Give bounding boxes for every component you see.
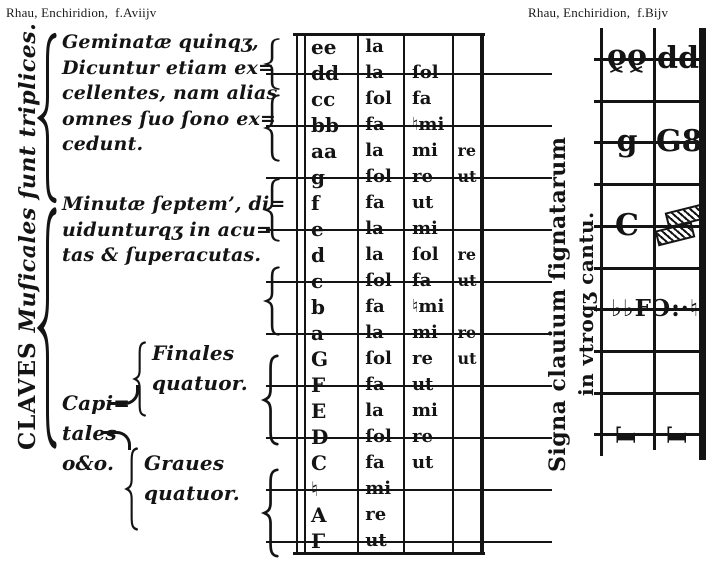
solmization-syllable: re bbox=[456, 138, 482, 164]
solmization-syllable bbox=[456, 294, 482, 320]
brace-table-geminatae-2 bbox=[264, 94, 281, 162]
solmization-syllable: fa bbox=[357, 112, 407, 138]
note-letter: E bbox=[306, 398, 357, 424]
brace-table-geminatae-1 bbox=[264, 38, 281, 90]
solmization-syllable: la bbox=[357, 320, 407, 346]
text-line: quatuor. bbox=[152, 368, 248, 398]
solmization-syllable bbox=[407, 528, 456, 554]
solmization-syllable bbox=[456, 502, 482, 528]
hatched-square-sign bbox=[656, 208, 702, 242]
gamut-row-e: elami bbox=[306, 216, 482, 242]
solmization-syllable: la bbox=[357, 398, 407, 424]
finales-label: Finales quatuor. bbox=[152, 338, 248, 398]
gamut-row-C: Cfaut bbox=[306, 450, 482, 476]
solmization-syllable: fa bbox=[357, 190, 407, 216]
clef-glyph: C bbox=[615, 208, 639, 243]
solmization-syllable: ut bbox=[456, 268, 482, 294]
gamut-row-F: Ffaut bbox=[306, 372, 482, 398]
clef-sign: Γ bbox=[602, 413, 652, 456]
claves-label-caps: CLAVES bbox=[14, 341, 41, 450]
text-line: omnes ſuo ſono ex= bbox=[62, 107, 277, 133]
solmization-syllable: fa bbox=[357, 294, 407, 320]
text-line: o&o. bbox=[62, 448, 130, 478]
solmization-syllable: mi bbox=[357, 476, 407, 502]
gamut-row-d: dlaſolre bbox=[306, 242, 482, 268]
note-letter: b bbox=[306, 294, 357, 320]
gamut-row-aa: aalamire bbox=[306, 138, 482, 164]
solmization-syllable bbox=[456, 398, 482, 424]
gamut-row-a: alamire bbox=[306, 320, 482, 346]
gamut-row-ee: eela bbox=[306, 34, 482, 60]
text-line: quatuor. bbox=[144, 478, 240, 508]
solmization-syllable: fa bbox=[357, 372, 407, 398]
note-letter: aa bbox=[306, 138, 357, 164]
note-letter: cc bbox=[306, 86, 357, 112]
geminatae-paragraph: Geminatæ quinqʒ, Dicuntur etiam ex= cell… bbox=[62, 30, 277, 158]
solmization-syllable bbox=[456, 86, 482, 112]
scala-staff-line bbox=[594, 267, 706, 270]
solmization-syllable: la bbox=[357, 60, 407, 86]
clef-glyph: Γ bbox=[606, 426, 648, 444]
note-letter: D bbox=[306, 424, 357, 450]
clef-glyph: G8 bbox=[656, 124, 703, 159]
clef-glyph: Γ bbox=[657, 426, 699, 444]
gamut-row-g: gſolreut bbox=[306, 164, 482, 190]
solmization-syllable: ſol bbox=[357, 164, 407, 190]
g-clef-signs: gG8 bbox=[600, 121, 710, 163]
clef-sign: C bbox=[602, 205, 652, 247]
note-letter: C bbox=[306, 450, 357, 476]
solmization-syllable: re bbox=[407, 164, 456, 190]
note-letter: dd bbox=[306, 60, 357, 86]
gamut-row-b: bfa♮mi bbox=[306, 294, 482, 320]
f-clef-signs: ♭♭FƆ:·♮ bbox=[600, 288, 710, 330]
clef-sign: ðð bbox=[602, 38, 652, 80]
gamut-row-f: ffaut bbox=[306, 190, 482, 216]
text-line: Geminatæ quinqʒ, bbox=[62, 30, 277, 56]
dd-clef-signs: ððdd bbox=[600, 38, 710, 80]
clef-glyph: g bbox=[617, 124, 638, 159]
brace-claves-upper bbox=[38, 32, 58, 204]
solmization-syllable bbox=[456, 112, 482, 138]
solmization-syllable bbox=[456, 476, 482, 502]
text-line: uidunturqʒ in acu= bbox=[62, 218, 286, 244]
solmization-syllable: la bbox=[357, 34, 407, 60]
solmization-syllable: fa bbox=[407, 86, 456, 112]
note-letter: ♮ bbox=[306, 476, 357, 502]
brace-table-minutae-2 bbox=[264, 266, 281, 336]
solmization-syllable: mi bbox=[407, 216, 456, 242]
clef-sign: Γ bbox=[656, 413, 700, 456]
note-letter: d bbox=[306, 242, 357, 268]
solmization-syllable: ut bbox=[357, 528, 407, 554]
clef-sign: g bbox=[602, 121, 652, 163]
solmization-syllable: re bbox=[456, 320, 482, 346]
scala-staff-line bbox=[594, 350, 706, 353]
caption-right: Rhau, Enchiridion, f.Bijv bbox=[528, 5, 668, 21]
brace-table-minutae-1 bbox=[264, 178, 281, 242]
text-line: Dicuntur etiam ex= bbox=[62, 56, 277, 82]
solmization-syllable: re bbox=[407, 424, 456, 450]
solmization-syllable bbox=[407, 476, 456, 502]
solmization-syllable bbox=[456, 34, 482, 60]
solmization-syllable: fa bbox=[407, 268, 456, 294]
graues-label: Graues quatuor. bbox=[144, 448, 240, 508]
solmization-syllable: ut bbox=[407, 450, 456, 476]
gamut-row-G: Gſolreut bbox=[306, 346, 482, 372]
caption-left: Rhau, Enchiridion, f.Aviijv bbox=[6, 5, 157, 21]
brace-table-graues bbox=[262, 468, 280, 558]
gamut-row-cc: ccſolfa bbox=[306, 86, 482, 112]
solmization-syllable: fa bbox=[357, 450, 407, 476]
text-line: cellentes, nam alias bbox=[62, 81, 277, 107]
note-letter: Γ bbox=[306, 528, 357, 554]
note-letter: e bbox=[306, 216, 357, 242]
brace-claves-lower bbox=[38, 206, 58, 450]
gamut-row-dd: ddlaſol bbox=[306, 60, 482, 86]
solmization-syllable: mi bbox=[407, 320, 456, 346]
table-outer-left-rule bbox=[296, 33, 298, 555]
scala-staff-line bbox=[594, 392, 706, 395]
solmization-syllable: mi bbox=[407, 398, 456, 424]
claves-vertical-label: CLAVESMuſicales ſunt triplices. bbox=[14, 23, 41, 450]
solmization-syllable bbox=[456, 424, 482, 450]
solmization-syllable: ſol bbox=[407, 60, 456, 86]
brace-graues bbox=[125, 447, 139, 531]
solmization-syllable: ſol bbox=[357, 268, 407, 294]
solmization-syllable: la bbox=[357, 216, 407, 242]
note-letter: F bbox=[306, 372, 357, 398]
scala-staff-line bbox=[594, 100, 706, 103]
gamut-row-bb: bbfa♮mi bbox=[306, 112, 482, 138]
text-line: Finales bbox=[152, 338, 248, 368]
signa-vertical-label-line1: Signa clauium ſignatarum bbox=[545, 136, 571, 472]
gamut-table: eeladdlaſolccſolfabbfa♮miaalamiregſolreu… bbox=[293, 33, 485, 555]
c-clef-signs: C bbox=[600, 205, 710, 247]
brace-finales bbox=[133, 341, 147, 417]
note-letter: g bbox=[306, 164, 357, 190]
brace-table-finales bbox=[262, 354, 280, 446]
scala-staff-line bbox=[594, 183, 706, 186]
solmization-syllable: ♮mi bbox=[407, 112, 456, 138]
gamut-row-c: cſolfaut bbox=[306, 268, 482, 294]
note-letter: a bbox=[306, 320, 357, 346]
clef-sign: dd bbox=[656, 38, 700, 80]
solmization-syllable bbox=[456, 372, 482, 398]
note-letter: ee bbox=[306, 34, 357, 60]
note-letter: c bbox=[306, 268, 357, 294]
gamut-row-E: Elami bbox=[306, 398, 482, 424]
solmization-syllable: ut bbox=[456, 346, 482, 372]
note-letter: A bbox=[306, 502, 357, 528]
text-line: Graues bbox=[144, 448, 240, 478]
clef-glyph: dd bbox=[657, 41, 699, 76]
gamma-clef-signs: ΓΓ bbox=[600, 413, 710, 455]
scala-figure: ððddgG8C♭♭FƆ:·♮ΓΓ bbox=[600, 28, 710, 460]
solmization-syllable: la bbox=[357, 242, 407, 268]
solmization-syllable bbox=[456, 60, 482, 86]
solmization-syllable: ſol bbox=[357, 346, 407, 372]
gamut-row-Γ: Γut bbox=[306, 528, 482, 554]
solmization-syllable: ut bbox=[407, 190, 456, 216]
solmization-syllable: ſol bbox=[407, 242, 456, 268]
solmization-syllable: ut bbox=[456, 164, 482, 190]
text-line: tas & ſuperacutas. bbox=[62, 243, 286, 269]
text-line: Minutæ ſeptem’, di= bbox=[62, 192, 286, 218]
signa-vertical-label-line2: in vtroqʒ cantu. bbox=[574, 211, 598, 396]
solmization-syllable: ſol bbox=[357, 86, 407, 112]
clef-glyph: ðð bbox=[607, 38, 647, 80]
note-letter: G bbox=[306, 346, 357, 372]
gamut-row-D: Dſolre bbox=[306, 424, 482, 450]
gamut-row-A: Are bbox=[306, 502, 482, 528]
solmization-syllable: re bbox=[456, 242, 482, 268]
solmization-syllable: mi bbox=[407, 138, 456, 164]
solmization-syllable bbox=[456, 216, 482, 242]
solmization-syllable bbox=[407, 34, 456, 60]
solmization-syllable: re bbox=[357, 502, 407, 528]
solmization-syllable bbox=[456, 528, 482, 554]
solmization-syllable: ♮mi bbox=[407, 294, 456, 320]
solmization-syllable bbox=[407, 502, 456, 528]
gamut-rows: eeladdlaſolccſolfabbfa♮miaalamiregſolreu… bbox=[306, 34, 482, 554]
clef-sign: ♭♭FƆ:·♮ bbox=[601, 288, 709, 330]
text-line: cedunt. bbox=[62, 132, 277, 158]
clef-sign: G8 bbox=[656, 121, 700, 163]
solmization-syllable: ut bbox=[407, 372, 456, 398]
solmization-syllable: la bbox=[357, 138, 407, 164]
solmization-syllable: ſol bbox=[357, 424, 407, 450]
minutae-paragraph: Minutæ ſeptem’, di= uidunturqʒ in acu= t… bbox=[62, 192, 286, 269]
solmization-syllable bbox=[456, 450, 482, 476]
gamut-row-♮: ♮mi bbox=[306, 476, 482, 502]
hatched-square-icon bbox=[655, 222, 696, 247]
note-letter: bb bbox=[306, 112, 357, 138]
note-letter: f bbox=[306, 190, 357, 216]
solmization-syllable: re bbox=[407, 346, 456, 372]
solmization-syllable bbox=[456, 190, 482, 216]
